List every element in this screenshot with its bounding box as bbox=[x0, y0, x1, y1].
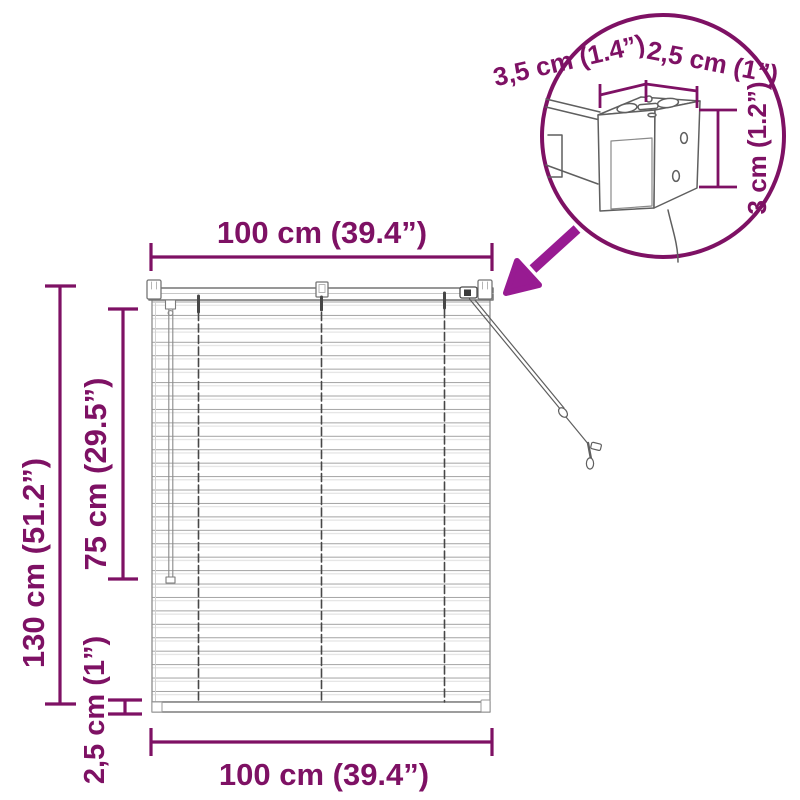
zoom-arrow bbox=[506, 229, 577, 293]
bracket-front-face bbox=[598, 110, 655, 211]
blind-dimension-diagram: 100 cm (39.4”) 100 cm (39.4”) 130 cm (51… bbox=[0, 0, 800, 800]
label-total-height: 130 cm (51.2”) bbox=[16, 458, 51, 668]
bracket-right bbox=[478, 280, 492, 299]
label-inner-height: 75 cm (29.5”) bbox=[78, 378, 113, 571]
label-top-width: 100 cm (39.4”) bbox=[217, 215, 427, 250]
bracket-left bbox=[147, 280, 161, 299]
label-detail-height: 3 cm (1.2”) bbox=[742, 82, 772, 215]
label-bottom-width: 100 cm (39.4”) bbox=[219, 757, 429, 792]
diagram-canvas: 100 cm (39.4”) 100 cm (39.4”) 130 cm (51… bbox=[0, 0, 800, 800]
blind-drawing bbox=[147, 280, 602, 712]
dimension-bottom-width bbox=[151, 728, 492, 756]
dimension-bottom-rail bbox=[108, 700, 142, 714]
bottom-rail bbox=[152, 700, 490, 712]
label-bottom-rail: 2,5 cm (1”) bbox=[79, 636, 111, 784]
